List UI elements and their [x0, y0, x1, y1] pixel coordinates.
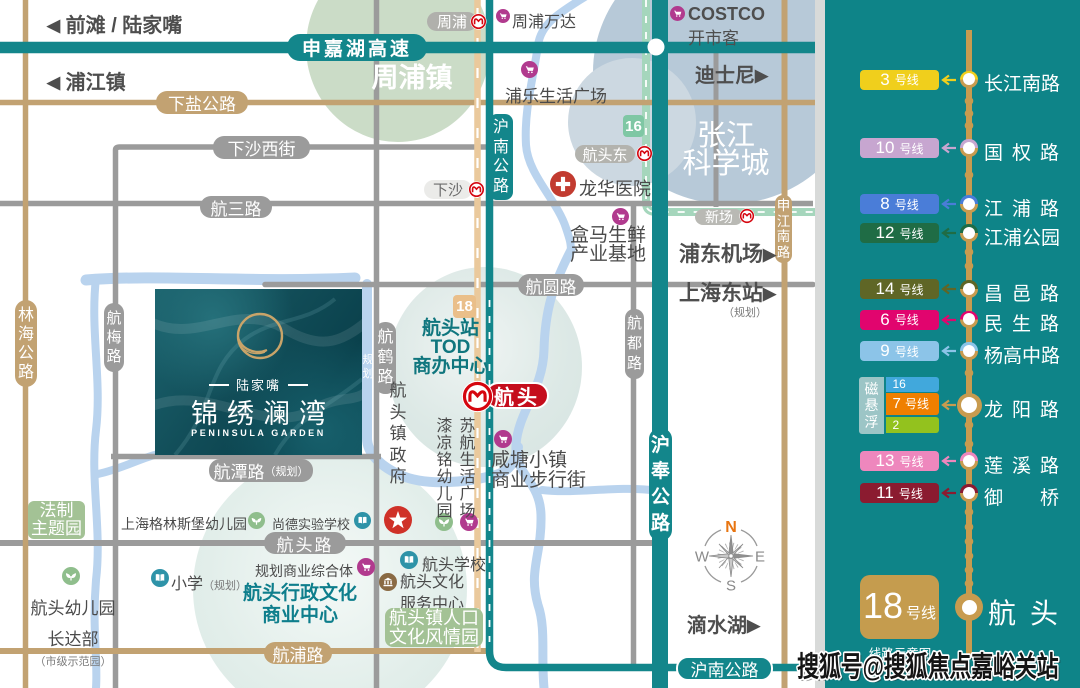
- svg-text:S: S: [726, 578, 736, 595]
- svg-text:W: W: [695, 549, 710, 566]
- svg-text:N: N: [725, 519, 737, 536]
- svg-text:E: E: [755, 549, 765, 566]
- svg-text:搜狐号@搜狐焦点嘉峪关站: 搜狐号@搜狐焦点嘉峪关站: [797, 650, 1058, 682]
